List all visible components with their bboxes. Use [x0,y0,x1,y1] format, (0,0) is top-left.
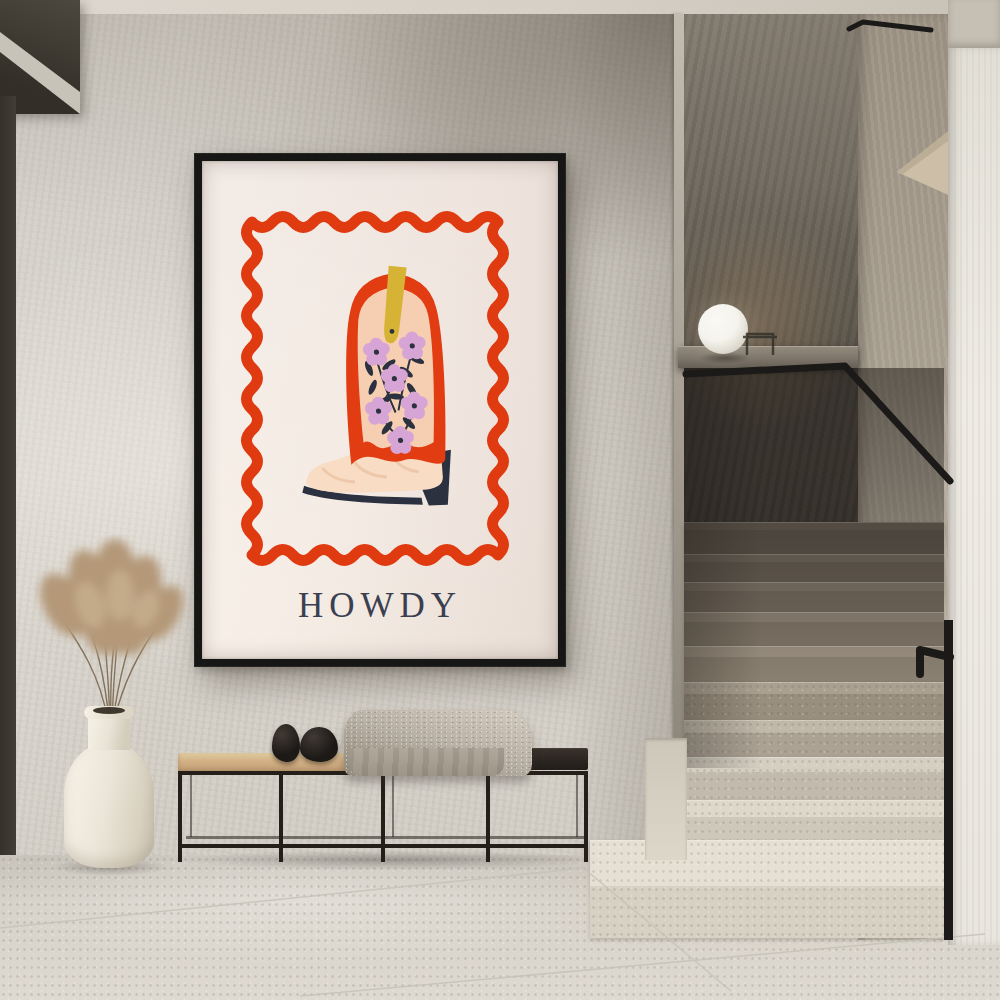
bench-leg [381,772,385,862]
hallway-scene: HOWDY [0,0,1000,1000]
cowboy-boot-illustration [295,264,453,510]
decor-stone-right [300,727,338,762]
handrail [686,22,950,674]
vase [64,742,154,868]
pampas-grass [20,535,200,735]
bench-leg-rear [190,772,192,837]
blanket [344,710,532,776]
lamp-stand [743,334,777,355]
poster-frame: HOWDY [194,153,566,667]
poster-art [202,161,558,659]
bench-leg-rear [576,772,578,837]
vase-mouth [93,707,125,714]
poster-paper: HOWDY [202,161,558,659]
poster-title: HOWDY [202,588,558,623]
bench-leg-rear [392,772,394,837]
bench-leg [178,772,182,862]
decor-stone-left [272,724,300,762]
bench-rail-rear [186,836,584,839]
blanket-drape [348,748,504,776]
balustrade-post [944,620,953,940]
bench-leg [584,772,588,862]
bench-leg [279,772,283,862]
bench-leg [486,772,490,862]
floor-seams [0,866,985,996]
